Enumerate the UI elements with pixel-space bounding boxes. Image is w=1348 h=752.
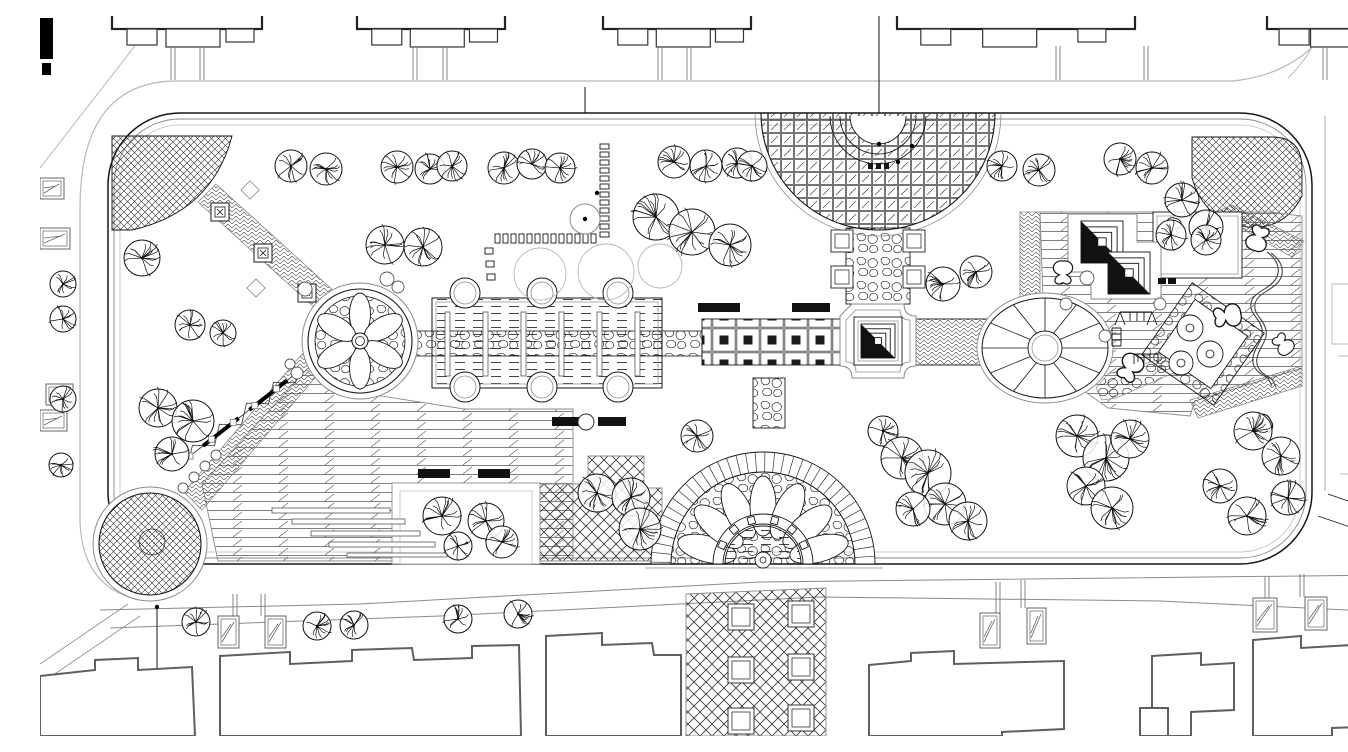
building-connector-path bbox=[1300, 574, 1304, 597]
tree-symbol bbox=[960, 256, 992, 288]
bench bbox=[418, 469, 450, 478]
tree-trunk bbox=[975, 271, 977, 273]
building-stair-pad bbox=[1078, 29, 1106, 42]
walkway-planter bbox=[903, 230, 925, 252]
tree-trunk bbox=[729, 244, 731, 246]
tree-trunk bbox=[396, 166, 398, 168]
road-or-leader-line bbox=[1332, 284, 1348, 344]
tree-trunk bbox=[62, 318, 64, 320]
tree-trunk bbox=[696, 435, 698, 437]
pool-center-feature bbox=[755, 552, 771, 568]
tree-symbol bbox=[50, 386, 76, 413]
colonnade-post bbox=[567, 234, 572, 243]
tree-trunk bbox=[325, 168, 327, 170]
building-connector-path bbox=[261, 594, 265, 616]
tree-symbol bbox=[50, 271, 76, 297]
pergola-beam bbox=[597, 312, 602, 376]
building-connector-path bbox=[1144, 46, 1148, 80]
tree-trunk bbox=[316, 625, 318, 627]
tree-symbol bbox=[681, 420, 713, 452]
shrub-ball bbox=[380, 272, 394, 286]
tree-trunk bbox=[141, 257, 143, 259]
corner-circle-plaza bbox=[93, 487, 207, 601]
colonnade-post bbox=[600, 144, 609, 149]
arc-band-node bbox=[747, 516, 756, 525]
pergola-column-planter bbox=[450, 278, 480, 308]
road-or-leader-line bbox=[1338, 356, 1348, 474]
colonnade-post bbox=[487, 274, 495, 280]
building-connector-path bbox=[171, 46, 175, 80]
building-stair-pad bbox=[983, 29, 1037, 47]
tree-symbol bbox=[172, 400, 214, 442]
colonnade-post bbox=[575, 234, 580, 243]
tree-trunk bbox=[422, 246, 424, 248]
pergola-column-planter bbox=[450, 372, 480, 402]
shrub-ball bbox=[1060, 298, 1072, 310]
tree-trunk bbox=[944, 503, 946, 505]
paved-walkway bbox=[415, 331, 702, 356]
tree-symbol bbox=[926, 267, 960, 301]
leader-dot bbox=[595, 191, 599, 195]
bench bbox=[1158, 278, 1166, 284]
tree-symbol bbox=[404, 227, 442, 266]
tree-trunk bbox=[559, 167, 561, 169]
leader-dot bbox=[155, 605, 159, 609]
legend-black-block bbox=[40, 18, 53, 59]
tree-trunk bbox=[192, 420, 194, 422]
building-footprint bbox=[1267, 16, 1348, 29]
tree-trunk bbox=[60, 464, 62, 466]
paved-walkway bbox=[753, 378, 785, 428]
shrub-ball bbox=[211, 450, 221, 460]
tree-trunk bbox=[62, 398, 64, 400]
terrace-step bbox=[311, 531, 420, 536]
pergola-beam bbox=[521, 312, 526, 376]
shrub-ball bbox=[298, 282, 312, 296]
terrace-step bbox=[272, 508, 390, 513]
tree-symbol bbox=[303, 612, 332, 640]
colonnade-post bbox=[600, 152, 609, 157]
colonnade-post bbox=[600, 216, 609, 221]
building-footprint bbox=[40, 658, 195, 736]
building-connector-path bbox=[658, 46, 662, 80]
tree-trunk bbox=[596, 492, 598, 494]
building-connector-path bbox=[200, 46, 204, 80]
tree-trunk bbox=[157, 407, 159, 409]
tree-trunk bbox=[1119, 158, 1121, 160]
pergola-column-planter bbox=[603, 372, 633, 402]
tree-trunk bbox=[1038, 169, 1040, 171]
tree-symbol bbox=[516, 149, 547, 179]
walkway-planter bbox=[831, 266, 853, 288]
tree-trunk bbox=[451, 165, 453, 167]
walkway-planter bbox=[903, 266, 925, 288]
tree-trunk bbox=[517, 613, 519, 615]
tree-trunk bbox=[691, 231, 693, 233]
building-connector-path bbox=[233, 594, 237, 616]
tree-trunk bbox=[384, 244, 386, 246]
tree-symbol bbox=[1203, 469, 1237, 503]
shrub-ball bbox=[178, 483, 188, 493]
tree-symbol bbox=[987, 151, 1017, 181]
building-connector-path bbox=[1265, 576, 1269, 598]
building-footprint bbox=[546, 633, 681, 736]
colonnade-post bbox=[600, 160, 609, 165]
shrub-ball bbox=[1154, 298, 1166, 310]
building-footprint bbox=[897, 16, 1135, 29]
tree-trunk bbox=[503, 167, 505, 169]
tree-trunk bbox=[1076, 435, 1078, 437]
terrace-step bbox=[329, 542, 435, 547]
paved-walkway bbox=[702, 319, 840, 365]
shrub-ball bbox=[291, 367, 303, 379]
bench bbox=[1168, 278, 1176, 284]
tree-symbol bbox=[437, 151, 467, 182]
ellipse-radial-plaza bbox=[977, 293, 1113, 403]
ellipse-hub bbox=[1028, 331, 1062, 365]
bench bbox=[552, 417, 580, 426]
terrace-step bbox=[347, 553, 447, 557]
building-connector-path bbox=[996, 582, 1000, 613]
stage-feature-mark bbox=[876, 163, 881, 169]
building-stair-pad bbox=[1279, 29, 1309, 45]
pergola-beam bbox=[445, 312, 450, 376]
tree-symbol bbox=[1262, 437, 1300, 476]
shrub-ball bbox=[1080, 271, 1094, 285]
tree-symbol bbox=[578, 474, 616, 512]
tree-trunk bbox=[1246, 515, 1248, 517]
colonnade-post bbox=[551, 234, 556, 243]
tree-trunk bbox=[967, 520, 969, 522]
tree-symbol bbox=[1023, 154, 1055, 186]
building-footprint bbox=[1140, 708, 1168, 736]
pergola-beam bbox=[483, 312, 488, 376]
building-connector-path bbox=[1021, 580, 1025, 608]
flower-plaza bbox=[302, 283, 418, 399]
tree-trunk bbox=[429, 168, 431, 170]
tree-trunk bbox=[1181, 199, 1183, 201]
trellis-post bbox=[209, 436, 215, 442]
tree-symbol bbox=[49, 306, 77, 333]
trellis-post bbox=[273, 386, 279, 392]
building-stair-pad bbox=[1311, 29, 1348, 47]
bench-planter bbox=[578, 414, 594, 430]
building-stair-pad bbox=[469, 29, 497, 42]
stage-feature-mark bbox=[868, 163, 873, 169]
tree-symbol bbox=[275, 150, 307, 183]
tree-trunk bbox=[457, 618, 459, 620]
building-stair-pad bbox=[715, 29, 743, 42]
shrub-ball bbox=[392, 281, 404, 293]
building-stair-pad bbox=[656, 29, 710, 47]
tree-symbol bbox=[49, 453, 74, 477]
trellis-post bbox=[252, 403, 258, 409]
colonnade-post bbox=[486, 261, 494, 267]
building-footprint bbox=[603, 16, 751, 29]
building-footprint bbox=[1253, 633, 1348, 736]
building-stair-pad bbox=[410, 29, 464, 47]
tree-trunk bbox=[222, 332, 224, 334]
road-or-leader-line bbox=[40, 604, 128, 664]
paved-walkway bbox=[846, 228, 910, 304]
tree-trunk bbox=[1001, 165, 1003, 167]
leader-dot bbox=[896, 160, 900, 164]
tree-trunk bbox=[927, 472, 929, 474]
colonnade-post bbox=[600, 224, 609, 229]
bench bbox=[598, 417, 626, 426]
tree-trunk bbox=[1252, 430, 1254, 432]
tree-symbol bbox=[896, 492, 930, 527]
leader-dot bbox=[910, 144, 914, 148]
circle-plaza-center-bed bbox=[139, 529, 165, 555]
tree-symbol bbox=[443, 604, 472, 633]
pergola-beam bbox=[635, 312, 640, 376]
tree-trunk bbox=[189, 324, 191, 326]
bench bbox=[792, 303, 830, 312]
pergola-column-planter bbox=[527, 372, 557, 402]
tree-trunk bbox=[531, 163, 533, 165]
tree-symbol bbox=[182, 607, 210, 636]
building-stair-pad bbox=[226, 29, 254, 42]
entrance-pad bbox=[1253, 598, 1277, 632]
colonnade-post bbox=[503, 234, 508, 243]
tree-trunk bbox=[62, 283, 64, 285]
bench bbox=[478, 469, 510, 478]
tree-symbol bbox=[504, 600, 534, 628]
pergola-beam bbox=[559, 312, 564, 376]
flower-hub bbox=[352, 333, 368, 349]
walkway-planter bbox=[831, 230, 853, 252]
building-footprint bbox=[220, 645, 521, 736]
colonnade-post bbox=[519, 234, 524, 243]
tree-trunk bbox=[195, 621, 197, 623]
colonnade-post bbox=[600, 200, 609, 205]
tree-trunk bbox=[171, 453, 173, 455]
colonnade-post bbox=[600, 176, 609, 181]
tree-trunk bbox=[441, 515, 443, 517]
tree-trunk bbox=[901, 457, 903, 459]
colonnade-post bbox=[485, 248, 493, 254]
building-stair-pad bbox=[618, 29, 648, 45]
play-table bbox=[1169, 351, 1193, 375]
tree-trunk bbox=[1129, 438, 1131, 440]
tree-trunk bbox=[673, 161, 675, 163]
tree-trunk bbox=[705, 165, 707, 167]
road-or-leader-line bbox=[1318, 516, 1348, 540]
tree-symbol bbox=[488, 152, 520, 184]
pyramid-roof-step bbox=[875, 338, 882, 345]
building-connector-path bbox=[1056, 46, 1060, 80]
colonnade-post bbox=[511, 234, 516, 243]
tree-trunk bbox=[1111, 507, 1113, 509]
colonnade-post bbox=[535, 234, 540, 243]
building-footprint bbox=[112, 16, 262, 29]
tree-symbol bbox=[124, 240, 160, 276]
bench bbox=[698, 303, 740, 312]
tree-trunk bbox=[1219, 485, 1221, 487]
tree-symbol bbox=[422, 497, 462, 535]
tree-trunk bbox=[942, 283, 944, 285]
building-connector-path bbox=[413, 46, 417, 80]
tree-trunk bbox=[1105, 457, 1107, 459]
pergola-column-planter bbox=[603, 278, 633, 308]
arc-band-node bbox=[770, 516, 779, 525]
tree-trunk bbox=[353, 624, 355, 626]
tree-trunk bbox=[485, 520, 487, 522]
tree-trunk bbox=[1170, 234, 1172, 236]
tree-trunk bbox=[290, 165, 292, 167]
building-connector-path bbox=[687, 46, 691, 80]
tree-trunk bbox=[882, 430, 884, 432]
play-table bbox=[1197, 341, 1223, 367]
pyramid-roof-step bbox=[1125, 269, 1133, 277]
leader-dot bbox=[877, 142, 881, 146]
shrub-ball bbox=[189, 472, 199, 482]
play-table bbox=[1177, 315, 1203, 341]
tree-trunk bbox=[1287, 497, 1289, 499]
tree-trunk bbox=[630, 496, 632, 498]
tree-trunk bbox=[912, 508, 914, 510]
tree-symbol bbox=[1191, 225, 1221, 255]
tree-symbol bbox=[1111, 419, 1149, 458]
colonnade-post bbox=[600, 192, 609, 197]
colonnade-post bbox=[591, 234, 596, 243]
tree-trunk bbox=[751, 165, 753, 167]
colonnade-post bbox=[543, 234, 548, 243]
tree-trunk bbox=[1151, 167, 1153, 169]
building-footprint bbox=[357, 16, 505, 29]
tree-trunk bbox=[457, 545, 459, 547]
shrub-ball bbox=[200, 461, 210, 471]
landscape-site-plan bbox=[40, 16, 1348, 736]
tree-trunk bbox=[1280, 455, 1282, 457]
building-stair-pad bbox=[372, 29, 402, 45]
tree-trunk bbox=[655, 216, 657, 218]
colonnade-post bbox=[527, 234, 532, 243]
trellis-post bbox=[230, 419, 236, 425]
colonnade-post bbox=[600, 184, 609, 189]
road-or-leader-line bbox=[1328, 494, 1348, 515]
paved-plaza bbox=[1020, 212, 1040, 304]
colonnade-post bbox=[600, 168, 609, 173]
building-stair-pad bbox=[127, 29, 157, 45]
shrub-ball bbox=[1099, 330, 1111, 342]
building-connector-path bbox=[443, 46, 447, 80]
shrub-ball bbox=[285, 359, 295, 369]
building-stair-pad bbox=[921, 29, 951, 45]
tree-symbol bbox=[949, 502, 987, 541]
stage-feature-mark bbox=[884, 163, 889, 169]
colonnade-post bbox=[600, 232, 609, 237]
colonnade-post bbox=[495, 234, 500, 243]
tree-symbol bbox=[310, 153, 342, 185]
pergola-column-planter bbox=[527, 278, 557, 308]
tree-symbol bbox=[340, 611, 368, 639]
tree-trunk bbox=[1205, 239, 1207, 241]
tree-trunk bbox=[501, 541, 503, 543]
colonnade-post bbox=[583, 234, 588, 243]
colonnade-post bbox=[600, 208, 609, 213]
tree-trunk bbox=[1085, 485, 1087, 487]
legend-black-block bbox=[42, 63, 51, 75]
pyramid-roof-step bbox=[1098, 238, 1106, 246]
colonnade-post bbox=[559, 234, 564, 243]
building-stair-pad bbox=[166, 29, 220, 47]
site-plan-drawing bbox=[40, 16, 1348, 736]
building-connector-path bbox=[1323, 46, 1327, 80]
tree-trunk bbox=[639, 528, 641, 530]
leader-dot bbox=[583, 217, 587, 221]
play-blob-shape bbox=[1053, 261, 1072, 284]
terrace-step bbox=[292, 519, 405, 524]
building-footprint bbox=[869, 651, 1064, 736]
tree-symbol bbox=[175, 310, 205, 340]
